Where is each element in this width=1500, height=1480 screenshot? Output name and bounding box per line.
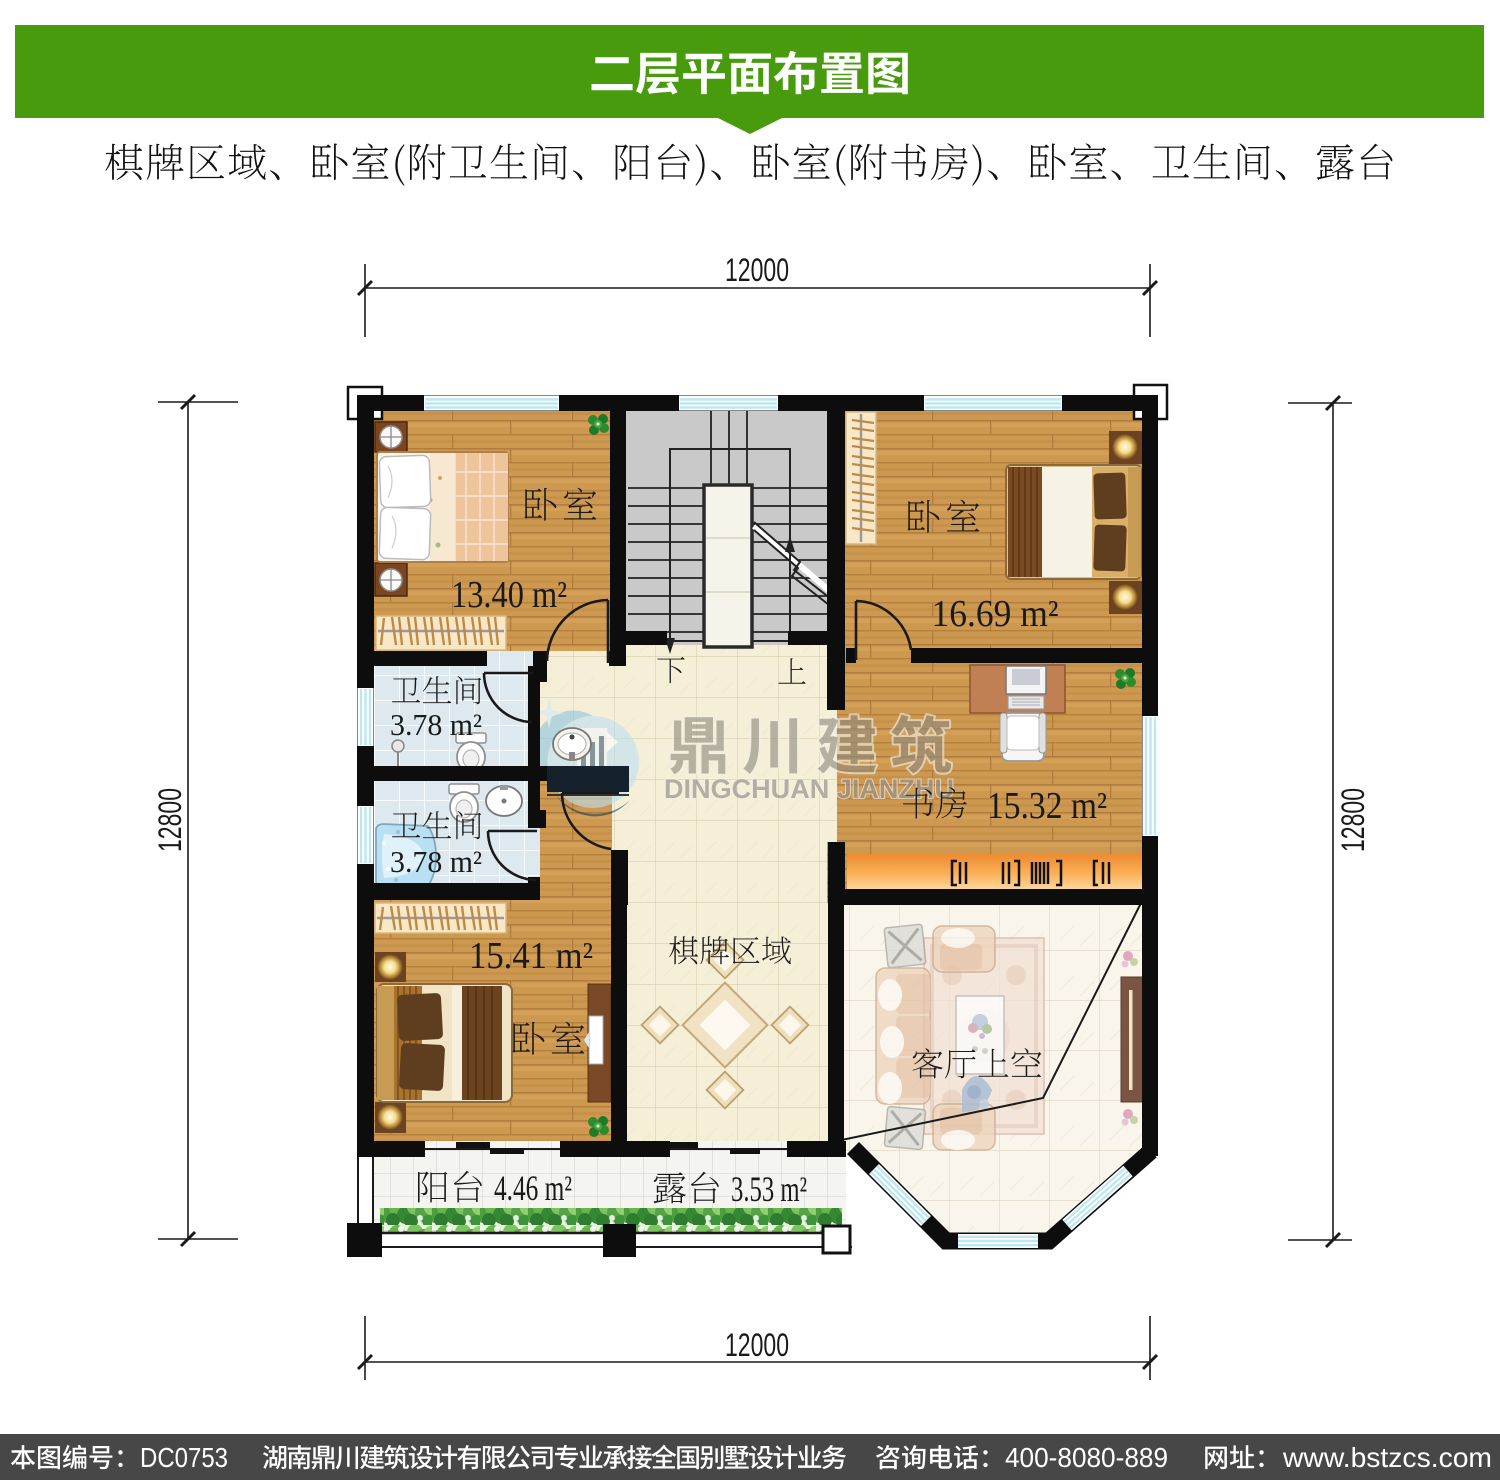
svg-text:15.32 m²: 15.32 m² [987,785,1107,827]
svg-text:12000: 12000 [725,252,789,288]
svg-text:12000: 12000 [725,1327,789,1363]
svg-text:12800: 12800 [1335,788,1371,852]
svg-text:12800: 12800 [152,788,188,852]
svg-text:3.53 m²: 3.53 m² [731,1169,807,1209]
svg-text:DINGCHUAN JIANZHU: DINGCHUAN JIANZHU [664,774,954,804]
svg-text:15.41 m²: 15.41 m² [469,935,593,977]
svg-text:3.78 m²: 3.78 m² [390,844,482,879]
svg-text:www.bstzcs.com: www.bstzcs.com [1282,1442,1492,1473]
svg-text:4.46 m²: 4.46 m² [494,1168,572,1208]
svg-text:400-8080-889: 400-8080-889 [1005,1442,1168,1473]
svg-text:3.78 m²: 3.78 m² [390,707,482,742]
svg-text:13.40 m²: 13.40 m² [451,574,567,616]
svg-text:16.69 m²: 16.69 m² [932,593,1059,635]
svg-text:DC0753: DC0753 [140,1442,228,1473]
